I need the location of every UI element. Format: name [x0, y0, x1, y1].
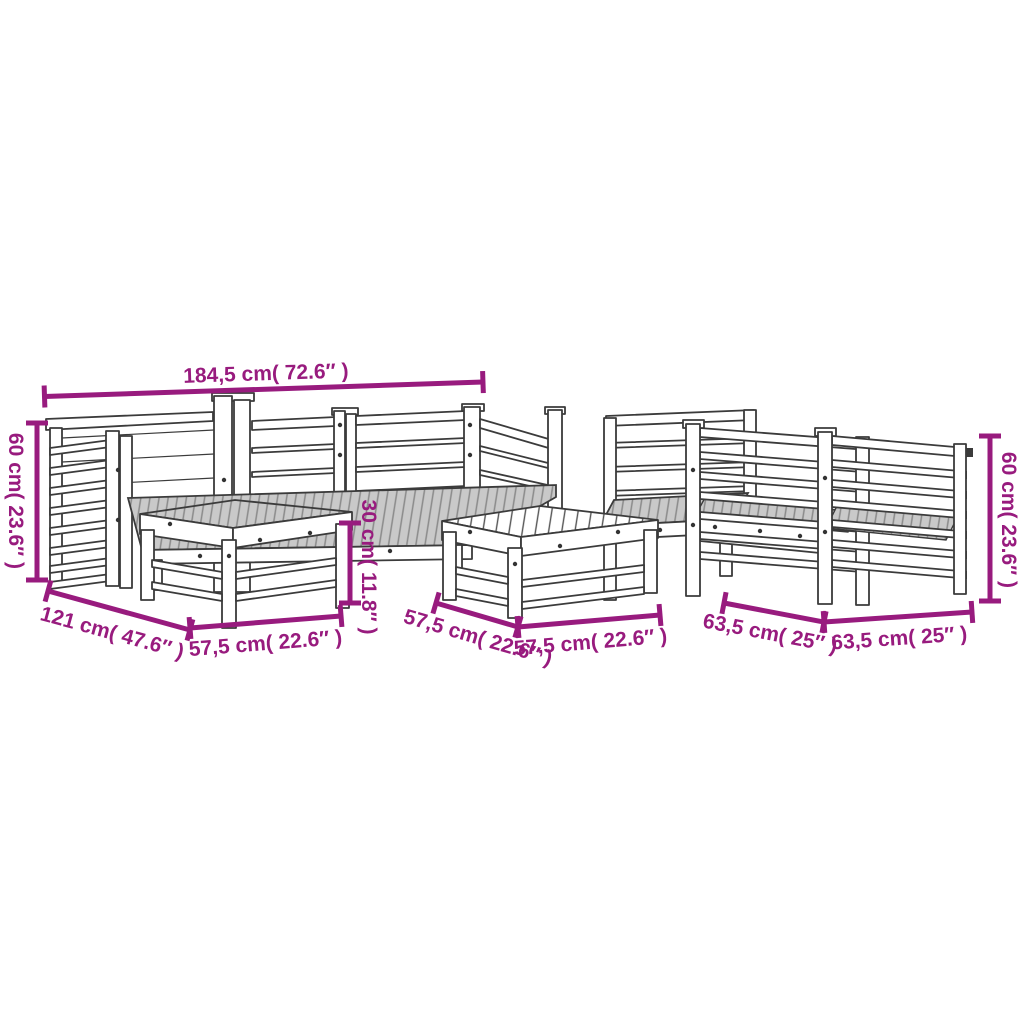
dimension-table-1-width: 57,5 cm( 22.6″ ) [186, 605, 343, 661]
dimension-label-sofa-depth: 121 cm( 47.6″ ) [38, 602, 187, 663]
ottoman-table-2 [442, 506, 658, 618]
diagram-svg: 184,5 cm( 72.6″ ) 60 cm( 23.6″ ) 121 cm(… [0, 0, 1024, 1024]
dimension-label-table-height: 30 cm( 11.8″ ) [357, 500, 380, 635]
dimension-label-height-right: 60 cm( 23.6″ ) [997, 452, 1020, 588]
dimension-chair-width: 63,5 cm( 25″ ) [823, 601, 974, 655]
corner-chair-2 [815, 428, 973, 604]
dimension-label-table-2-width: 57,5 cm( 22.6″ ) [513, 625, 668, 661]
dimension-diagram: 184,5 cm( 72.6″ ) 60 cm( 23.6″ ) 121 cm(… [0, 0, 1024, 1024]
dimension-total-width: 184,5 cm( 72.6″ ) [44, 355, 484, 407]
dimension-label-chair-depth: 63,5 cm( 25″ ) [701, 610, 839, 658]
dimension-label-height-left: 60 cm( 23.6″ ) [4, 433, 27, 569]
dimension-label-chair-width: 63,5 cm( 25″ ) [831, 622, 968, 654]
dimension-label-table-1-width: 57,5 cm( 22.6″ ) [188, 626, 343, 661]
dimension-height-left: 60 cm( 23.6″ ) [4, 423, 48, 580]
furniture-drawing [46, 393, 973, 628]
dimension-table-2-width: 57,5 cm( 22.6″ ) [511, 604, 668, 661]
dimension-label-total-width: 184,5 cm( 72.6″ ) [183, 359, 349, 387]
dimension-height-right: 60 cm( 23.6″ ) [979, 436, 1020, 601]
